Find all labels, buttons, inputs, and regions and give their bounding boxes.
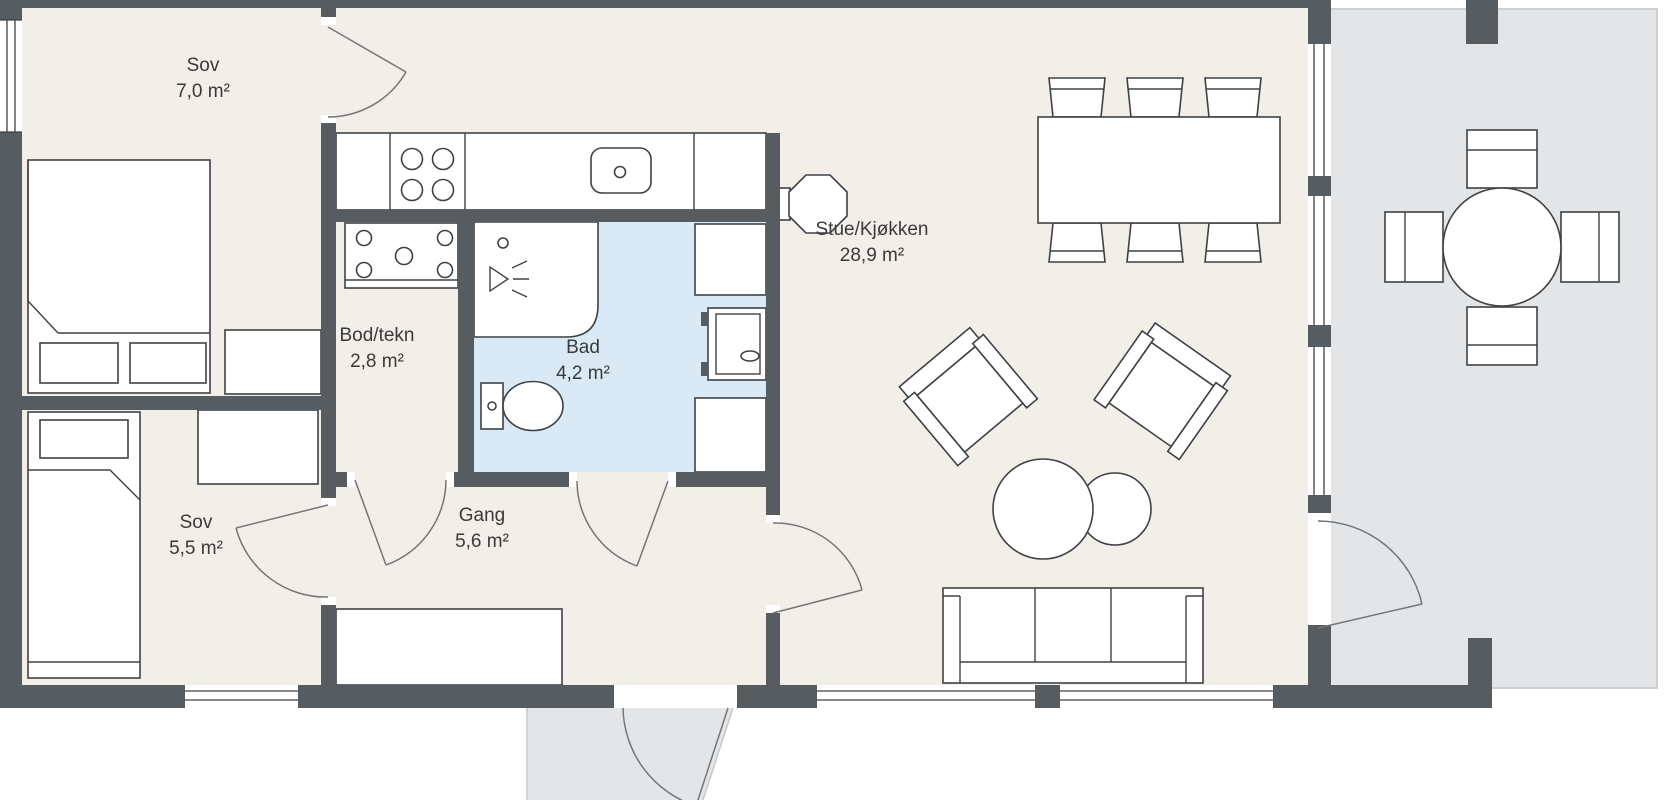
- wall-south: [728, 685, 817, 708]
- floor-plan: Sov 7,0 m² Bod/tekn 2,8 m² Bad 4,2 m² St…: [0, 0, 1670, 800]
- window-south-living: [1060, 687, 1273, 703]
- wall-interior: [336, 210, 780, 222]
- room-label-bad: Bad 4,2 m²: [556, 335, 610, 387]
- room-area: 7,0 m²: [176, 79, 230, 105]
- washing-machine: [701, 308, 766, 380]
- room-label-bod: Bod/tekn 2,8 m²: [340, 323, 415, 375]
- wall-interior: [668, 472, 766, 487]
- terrace-chair: [1467, 130, 1537, 188]
- room-name: Sov: [169, 510, 223, 536]
- dining-chair: [1127, 223, 1183, 262]
- toilet: [481, 382, 563, 431]
- window-south-living: [817, 687, 1035, 703]
- floor-plan-canvas: [0, 0, 1670, 800]
- window-mullion: [1308, 176, 1331, 196]
- room-area: 28,9 m²: [816, 243, 929, 269]
- wall-interior: [446, 472, 577, 487]
- pillow: [40, 420, 128, 458]
- shower-drain: [498, 238, 508, 248]
- room-name: Gang: [455, 503, 509, 529]
- kitchen-counter: [336, 133, 766, 210]
- room-name: Sov: [176, 53, 230, 79]
- terrace-chair: [1467, 307, 1537, 365]
- window-south-bedroom2: [185, 687, 298, 703]
- dining-table: [1038, 117, 1280, 223]
- terrace-chair: [1385, 212, 1443, 282]
- room-label-sov2: Sov 5,5 m²: [169, 510, 223, 562]
- room-label-gang: Gang 5,6 m²: [455, 503, 509, 555]
- pillow: [40, 343, 118, 383]
- dining-chair: [1205, 223, 1261, 262]
- room-area: 5,6 m²: [455, 529, 509, 555]
- window-east: [1308, 196, 1331, 325]
- terrace-pillar: [1466, 0, 1498, 44]
- technical-unit: [345, 223, 458, 288]
- wall-east: [1308, 8, 1331, 44]
- wall-interior: [458, 222, 474, 472]
- window-east: [1308, 44, 1331, 176]
- wall-interior: [22, 396, 321, 410]
- room-name: Bad: [556, 335, 610, 361]
- bathroom-cabinet: [695, 398, 766, 472]
- sofa: [943, 588, 1203, 683]
- dining-set: [1038, 78, 1280, 262]
- window-mullion: [1308, 325, 1331, 347]
- wall-corner-post: [1468, 638, 1492, 685]
- room-area: 4,2 m²: [556, 361, 610, 387]
- room-name: Stue/Kjøkken: [816, 217, 929, 243]
- room-area: 5,5 m²: [169, 536, 223, 562]
- wall-east: [1308, 625, 1331, 685]
- wall-interior: [321, 115, 336, 506]
- dining-chair: [1127, 78, 1183, 117]
- window-east: [1308, 347, 1331, 495]
- wall-south: [1273, 685, 1492, 708]
- wardrobe: [336, 609, 562, 685]
- wall-north: [0, 0, 1331, 8]
- desk: [198, 410, 318, 484]
- dining-chair: [1049, 78, 1105, 117]
- room-label-stue: Stue/Kjøkken 28,9 m²: [816, 217, 929, 269]
- wall-interior: [766, 133, 780, 523]
- window-west: [0, 20, 22, 132]
- bathroom-cabinet: [695, 224, 766, 295]
- wall-south: [0, 685, 185, 708]
- wall-interior: [766, 613, 780, 685]
- coffee-table-large: [993, 459, 1093, 559]
- pillow: [130, 343, 206, 383]
- room-name: Bod/tekn: [340, 323, 415, 349]
- wall-interior: [321, 597, 336, 685]
- terrace-round-table: [1443, 188, 1561, 306]
- kitchen-sink: [591, 148, 651, 193]
- dining-chair: [1205, 78, 1261, 117]
- nightstand: [225, 330, 321, 394]
- dining-chair: [1049, 223, 1105, 262]
- room-label-sov1: Sov 7,0 m²: [176, 53, 230, 105]
- shower: [474, 222, 598, 337]
- window-mullion: [1035, 685, 1060, 708]
- room-area: 2,8 m²: [340, 349, 415, 375]
- terrace-chair: [1561, 212, 1619, 282]
- wall-south: [298, 685, 622, 708]
